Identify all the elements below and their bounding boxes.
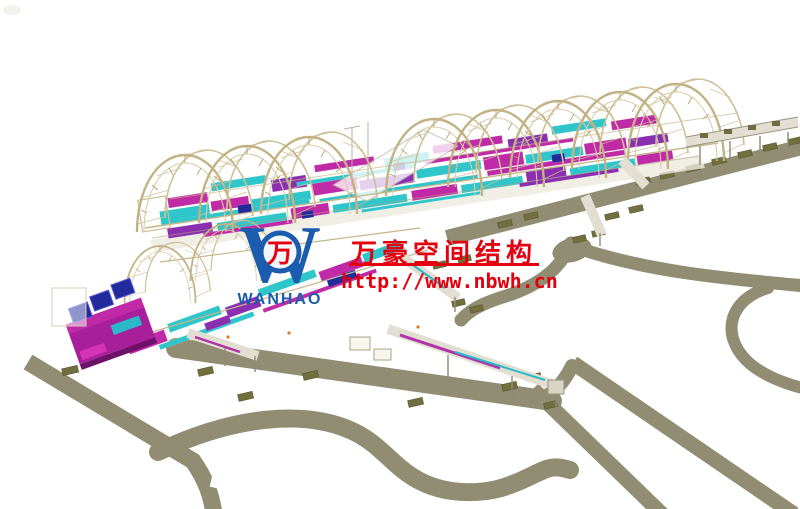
company-logo: W 万 WANHAO [226, 212, 334, 312]
watermark-website-url: http://www.nbwh.cn [341, 269, 558, 293]
watermark-underline [349, 263, 539, 266]
logo-word: WANHAO [238, 291, 323, 308]
image-artifact [3, 5, 21, 15]
canopy-frame [52, 288, 86, 326]
terminal-model-screenshot: W 万 WANHAO 万豪空间结构 http://www.nbwh.cn [0, 0, 800, 509]
logo-glyph: 万 [267, 239, 293, 268]
